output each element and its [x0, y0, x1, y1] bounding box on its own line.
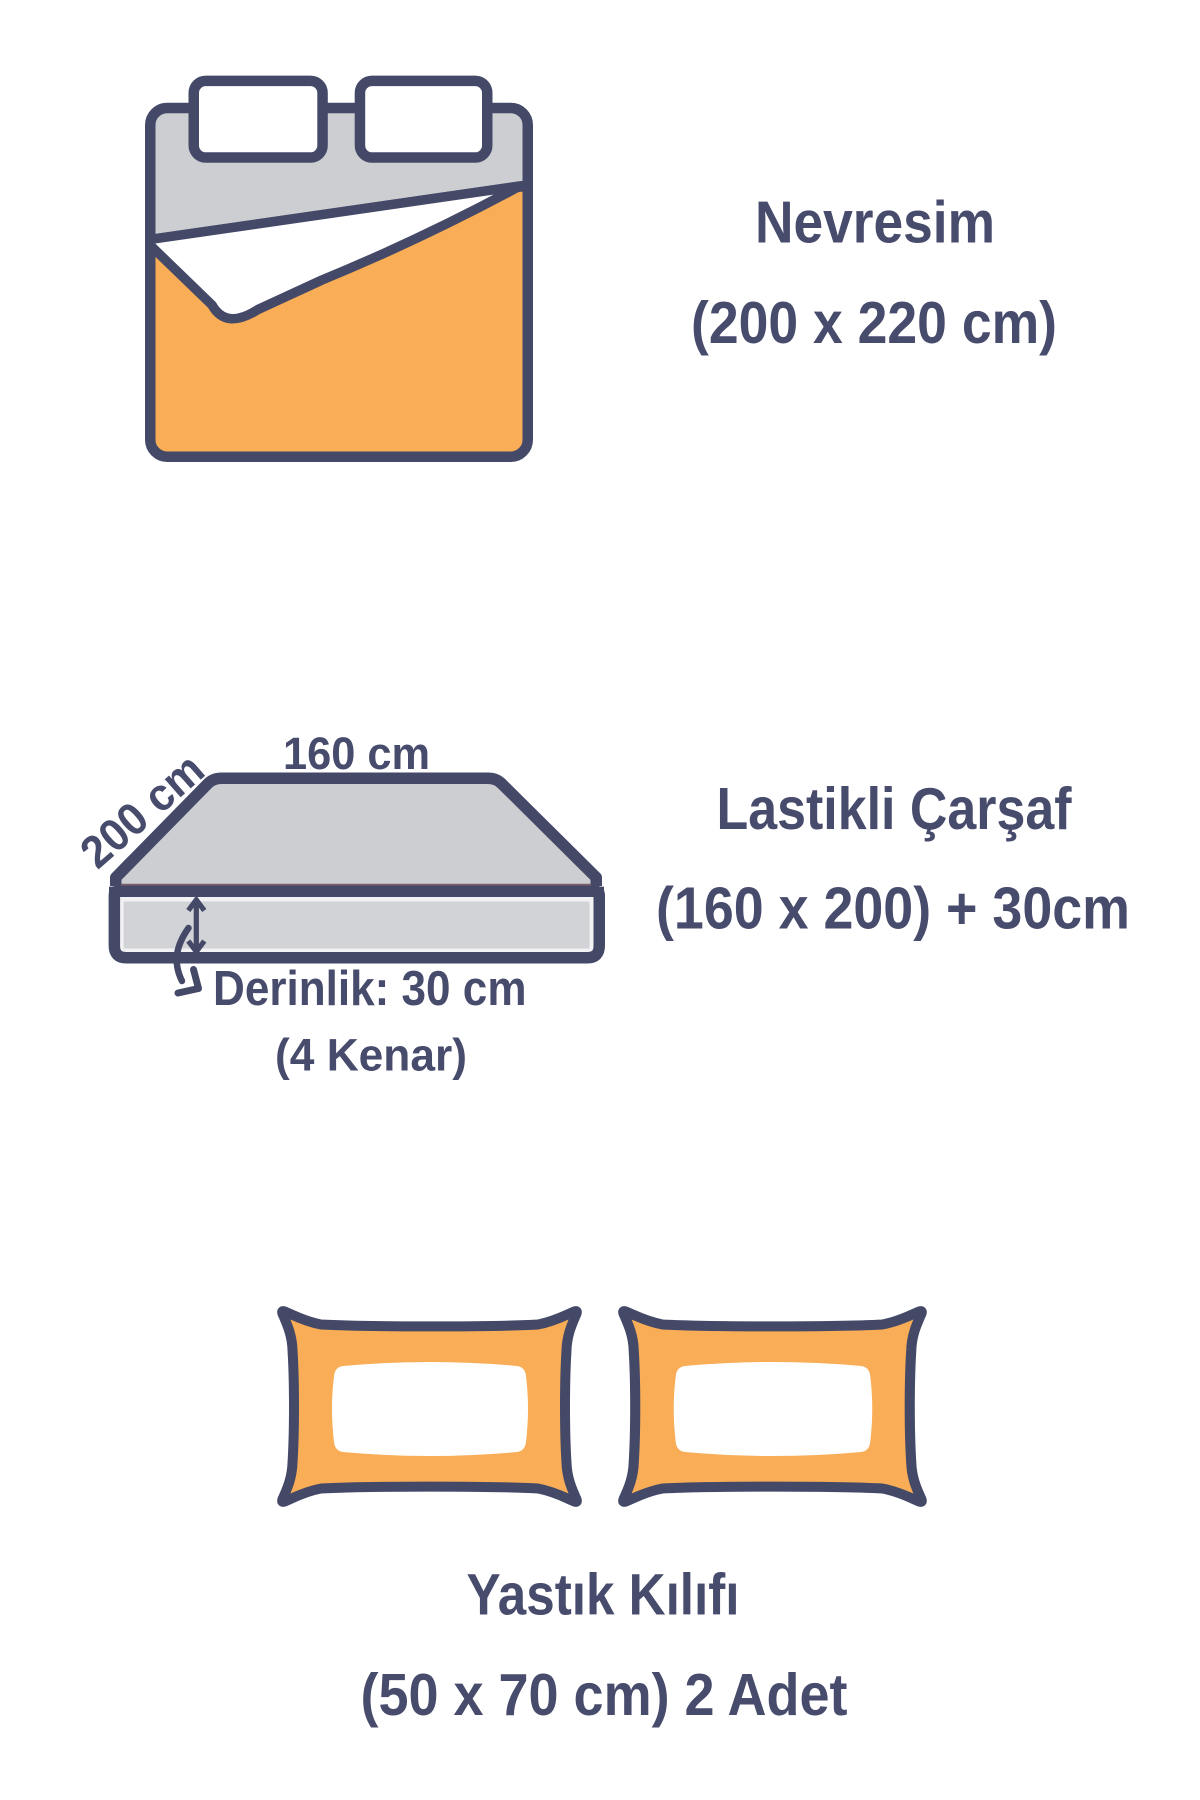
svg-text:160 cm: 160 cm — [283, 728, 430, 779]
svg-text:Nevresim: Nevresim — [755, 190, 995, 256]
svg-text:(200 x 220 cm): (200 x 220 cm) — [691, 290, 1057, 356]
svg-text:Lastikli Çarşaf: Lastikli Çarşaf — [717, 776, 1072, 842]
svg-text:Derinlik: 30 cm: Derinlik: 30 cm — [213, 962, 527, 1016]
svg-text:Yastık Kılıfı: Yastık Kılıfı — [467, 1563, 740, 1628]
svg-text:(50 x 70 cm) 2 Adet: (50 x 70 cm) 2 Adet — [361, 1662, 848, 1728]
svg-text:(160 x 200) + 30cm: (160 x 200) + 30cm — [656, 876, 1130, 942]
svg-text:(4 Kenar): (4 Kenar) — [275, 1030, 467, 1081]
